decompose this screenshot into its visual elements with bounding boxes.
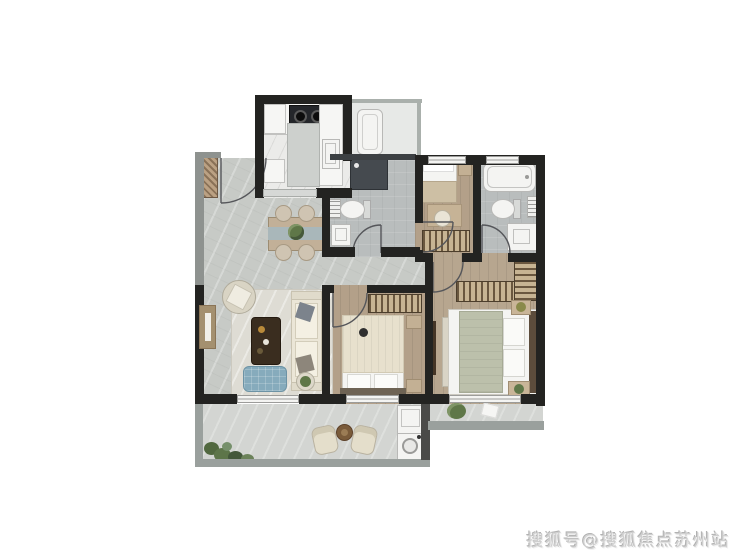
kitchen-wall-left — [255, 95, 264, 198]
second-bedroom-window — [346, 395, 399, 403]
balcony-wall-left — [195, 404, 203, 466]
guest-bathroom-wall-bottom — [381, 247, 420, 257]
door-arcs — [0, 0, 740, 555]
bedrooms-wall-top — [462, 253, 482, 262]
west-wall-upper — [195, 152, 204, 285]
balcony-sliding-door — [237, 395, 299, 403]
balcony-terrace-divider — [421, 404, 430, 460]
guest-bathroom-wall-bottom — [322, 247, 355, 257]
service-balcony-wall — [346, 99, 422, 103]
small-bedroom-window — [428, 156, 466, 164]
kitchen-wall-top — [255, 95, 352, 104]
small-bedroom-door-arc — [423, 222, 453, 252]
second-bedroom-door-arc — [333, 293, 367, 327]
terrace-railing — [428, 421, 544, 430]
bathroom-bedroom-divider — [415, 155, 423, 223]
living-bedroom-divider — [322, 285, 330, 404]
south-wall — [521, 394, 545, 404]
kitchen-wall-right — [343, 95, 352, 161]
master-bedroom-door-arc — [433, 262, 463, 292]
floor-plan-image: 搜狐号@搜狐焦点苏州站 — [0, 0, 740, 555]
bedroom-ensuite-divider — [473, 162, 481, 253]
bedrooms-wall-top — [419, 253, 433, 262]
south-wall — [299, 394, 346, 404]
bathroom-wall-top — [330, 154, 416, 160]
bedroom-bedroom-divider — [425, 262, 433, 404]
bedrooms-wall-top — [508, 253, 545, 262]
service-balcony-wall — [417, 99, 421, 158]
second-bedroom-wall-top — [367, 285, 428, 293]
south-wall — [399, 394, 449, 404]
living-room-window-slot — [205, 313, 211, 341]
watermark-text: 搜狐号@搜狐焦点苏州站 — [527, 526, 731, 551]
east-wall — [536, 155, 545, 406]
ensuite-window — [486, 156, 519, 164]
second-bedroom-wall-top — [330, 285, 334, 293]
ensuite-door-arc — [482, 225, 510, 253]
kitchen-sliding-door — [263, 189, 317, 197]
master-bedroom-window — [449, 395, 521, 403]
balcony-railing — [195, 459, 430, 467]
guest-bathroom-door-arc — [353, 225, 381, 253]
south-wall — [195, 394, 237, 404]
